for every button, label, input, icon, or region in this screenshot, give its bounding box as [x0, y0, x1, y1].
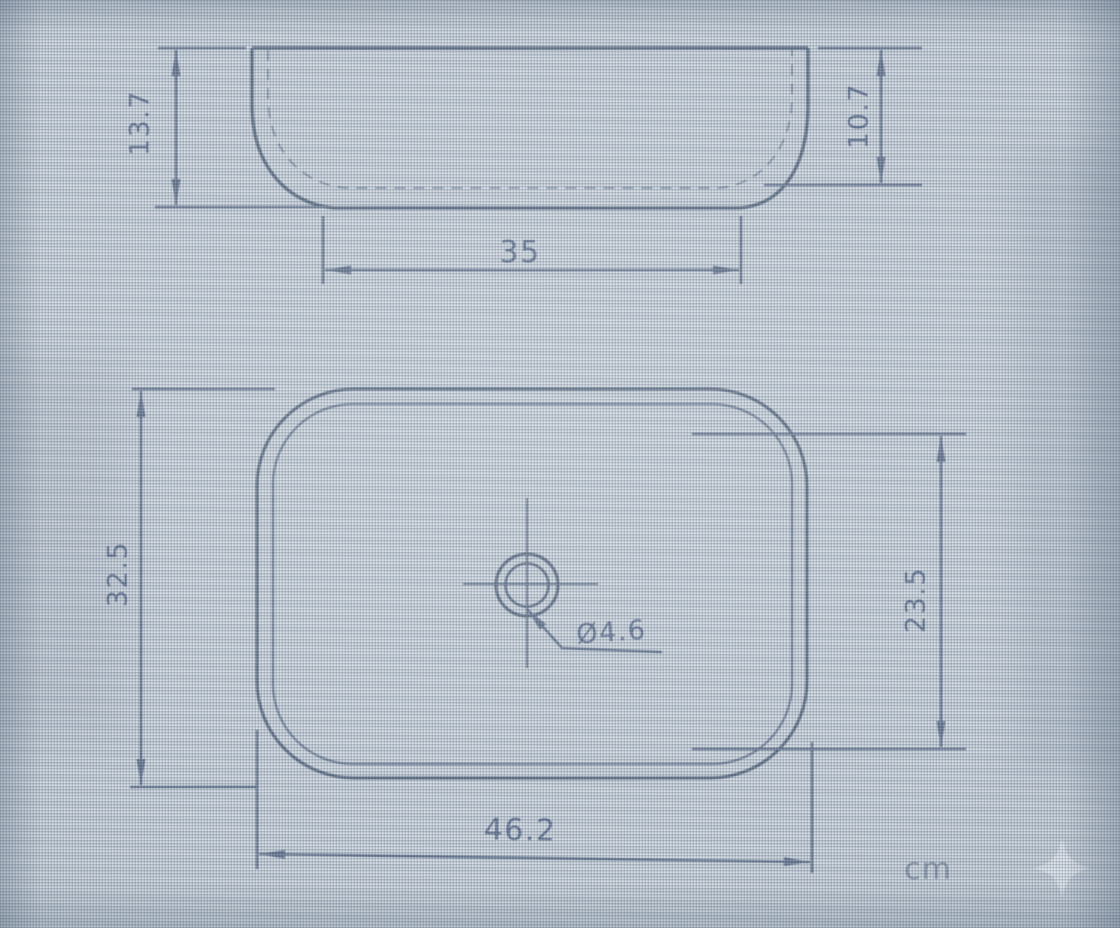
arrowhead-left	[325, 266, 351, 275]
dim-label-front-overall-height: 13.7	[125, 90, 156, 156]
dim-label-drain-diameter: Ø4.6	[575, 615, 647, 651]
dim-label-front-base-width: 35	[499, 235, 540, 270]
arrowhead-down	[172, 179, 181, 205]
top-view: Ø4.6 32.5 23.5	[103, 389, 967, 873]
arrowhead-left	[259, 850, 285, 859]
sparkle-icon	[1033, 838, 1091, 898]
front-outer-profile	[252, 48, 808, 208]
arrowhead-right	[784, 857, 810, 866]
unit-label: cm	[904, 852, 952, 887]
arrowhead-up	[877, 50, 886, 76]
dim-label-front-inner-depth: 10.7	[844, 83, 875, 149]
dim-front-overall-height	[155, 48, 326, 207]
dim-label-top-inner-depth: 23.5	[901, 567, 932, 633]
screen-photo-background: 13.7 10.7 35	[0, 0, 1120, 928]
dim-top-overall-length	[257, 730, 812, 873]
arrowhead-down	[937, 721, 946, 747]
basin-technical-drawing: 13.7 10.7 35	[0, 0, 1120, 928]
arrowhead-right	[713, 266, 739, 275]
arrowhead-down	[877, 157, 886, 183]
arrowhead-up	[937, 436, 946, 462]
dimension-line	[259, 854, 810, 862]
dim-label-top-overall-depth: 32.5	[103, 541, 134, 607]
front-inner-hidden-line	[268, 50, 792, 188]
arrowhead-down	[137, 759, 146, 785]
arrowhead-up	[172, 50, 181, 76]
dim-label-top-overall-length: 46.2	[483, 812, 556, 848]
arrowhead-up	[137, 391, 146, 417]
dim-top-overall-depth	[130, 389, 275, 787]
front-view: 13.7 10.7 35	[125, 48, 923, 284]
